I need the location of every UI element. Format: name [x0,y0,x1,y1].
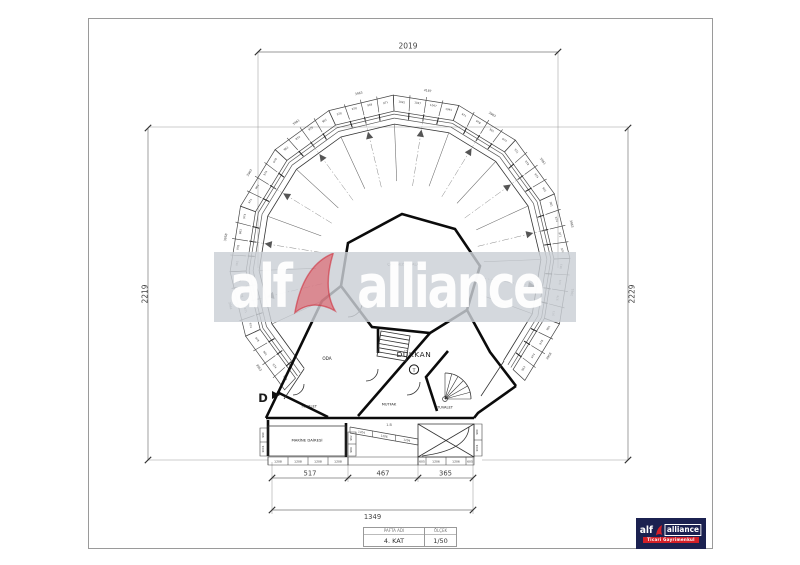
svg-text:978: 978 [555,295,560,301]
svg-text:974: 974 [530,352,536,359]
svg-text:971: 971 [551,310,556,316]
room-label-makine-dairesi: MAKİNE DAİRESİ [291,438,322,443]
titleblock-scale-header: ÖLÇEK [425,528,456,535]
floor-plan-drawing: 9639749789613958971978974963396197897197… [0,0,800,565]
svg-text:978: 978 [272,157,278,164]
svg-text:971: 971 [461,112,468,118]
svg-text:1208: 1208 [334,459,342,463]
svg-text:962: 962 [349,435,353,441]
svg-text:961: 961 [321,117,328,123]
svg-text:978: 978 [336,111,342,116]
svg-text:963: 963 [238,229,243,235]
svg-text:978: 978 [307,125,314,131]
svg-text:978: 978 [475,119,482,125]
svg-text:974: 974 [248,322,253,328]
titleblock-sheet-value: 4. KAT [364,535,424,547]
svg-text:1001: 1001 [475,444,479,451]
logo-sail-icon [655,525,662,536]
svg-text:974: 974 [295,135,302,141]
svg-text:3958: 3958 [223,233,228,241]
svg-text:1047: 1047 [430,103,438,108]
svg-text:1208: 1208 [274,459,282,463]
svg-text:3961: 3961 [292,118,301,126]
svg-text:961: 961 [545,324,551,331]
svg-text:971: 971 [243,307,248,313]
svg-text:978: 978 [538,339,544,346]
logo-tagline: Ticari Gayrimenkul [643,537,699,543]
room-label-oda: ODA [322,356,331,361]
svg-text:3958: 3958 [545,352,553,361]
room-label-dukkan: DÜKKAN [397,350,432,359]
room-label-tuvalet-right: TUVALET [436,406,454,410]
svg-text:974: 974 [558,279,563,285]
svg-text:961: 961 [549,201,554,207]
svg-text:978: 978 [351,106,357,111]
room-label-tuvalet-left: TUVALET [300,405,318,409]
door-arc [366,369,378,381]
svg-text:978: 978 [239,292,244,298]
svg-text:1045: 1045 [398,100,406,105]
svg-text:3963: 3963 [255,363,263,372]
svg-text:3961: 3961 [227,301,233,310]
logo-alf: alf [640,525,653,536]
svg-text:1208: 1208 [314,459,322,463]
svg-text:961: 961 [262,350,268,357]
dim-right-value: 2229 [628,284,637,303]
svg-text:605: 605 [467,459,473,463]
svg-text:1206: 1206 [380,434,388,439]
roof-ring-dimension-boxes: 9639749789613958971978974963396197897197… [223,88,575,390]
right-wall [467,310,516,386]
svg-text:980: 980 [475,429,479,435]
bottom-dimension-rows: 1208120812081208605120612066051204120612… [260,424,482,465]
svg-text:978: 978 [524,160,530,167]
svg-text:963: 963 [237,276,242,282]
logo-alf-alliance: alf alliance Ticari Gayrimenkul [636,518,706,549]
extension-lines [148,52,628,514]
svg-text:1204: 1204 [403,438,411,443]
svg-text:974: 974 [533,172,539,179]
door-arc [293,384,304,395]
svg-text:3963: 3963 [569,220,575,229]
svg-text:978: 978 [236,244,241,250]
svg-text:961: 961 [254,183,260,190]
drawing-page: 9639749789613958971978974963396197897197… [0,0,800,565]
titleblock-scale-value: 1/50 [425,535,456,547]
svg-text:974: 974 [554,216,559,222]
svg-text:990: 990 [261,432,265,438]
dukkan-tag-letter: T [412,368,416,374]
svg-text:963: 963 [559,263,564,269]
svg-text:949: 949 [367,102,373,107]
svg-text:971: 971 [247,198,253,205]
svg-text:1204: 1204 [358,430,366,435]
svg-text:1001: 1001 [261,445,265,452]
svg-text:961: 961 [541,186,547,193]
titleblock-sheet-header: PAFTA ADI [364,528,424,535]
section-marker-d: D [258,391,268,405]
roof-area-label: ÇATI GEZİNTİ ALANI [387,262,423,267]
logo-alliance: alliance [664,524,702,536]
svg-text:4187: 4187 [423,88,431,93]
svg-text:974: 974 [271,363,277,370]
dim-top-value: 2019 [398,42,417,51]
svg-text:963: 963 [283,145,290,151]
svg-text:978: 978 [254,336,260,343]
dim-bottom-seg2: 467 [377,470,390,478]
door-arc [407,382,420,395]
svg-text:984: 984 [349,447,353,453]
svg-text:1206: 1206 [432,459,440,463]
svg-text:1208: 1208 [294,459,302,463]
dim-bottom-total: 1349 [364,513,381,521]
core-wall [341,214,480,333]
svg-text:1047: 1047 [414,100,422,105]
svg-text:963: 963 [520,365,526,372]
beam-label: 1.B [386,423,392,427]
svg-text:961: 961 [489,127,496,133]
svg-text:3961: 3961 [539,157,547,166]
svg-text:605: 605 [419,459,425,463]
svg-text:971: 971 [513,148,519,155]
svg-text:961: 961 [235,260,240,266]
titleblock: PAFTA ADI 4. KAT ÖLÇEK 1/50 [363,527,457,547]
svg-text:1045: 1045 [445,107,453,112]
right-wall-lower [474,386,516,418]
dim-bottom-seg3: 365 [439,470,452,478]
walls [266,214,516,457]
svg-text:3961: 3961 [570,288,575,296]
titleblock-sheet-cell: PAFTA ADI 4. KAT [364,528,424,546]
spiral-stair [443,373,471,401]
svg-text:974: 974 [262,170,268,177]
svg-text:3963: 3963 [246,168,254,177]
svg-text:978: 978 [560,248,565,254]
svg-text:971: 971 [558,232,563,238]
room-label-mutfak: MUTFAK [382,403,397,407]
svg-text:1206: 1206 [452,459,460,463]
left-wall [266,286,341,418]
svg-text:3963: 3963 [355,91,364,97]
titleblock-scale-cell: ÖLÇEK 1/50 [424,528,456,546]
svg-text:974: 974 [242,213,247,219]
dim-left-value: 2219 [141,284,150,303]
room-labels: DÜKKAN T ODA MUTFAK TUVALET TUVALET MAKİ… [258,262,454,443]
dim-bottom-seg1: 517 [304,470,317,478]
svg-text:3963: 3963 [488,111,497,119]
svg-text:974: 974 [501,137,508,143]
svg-text:971: 971 [383,100,389,105]
